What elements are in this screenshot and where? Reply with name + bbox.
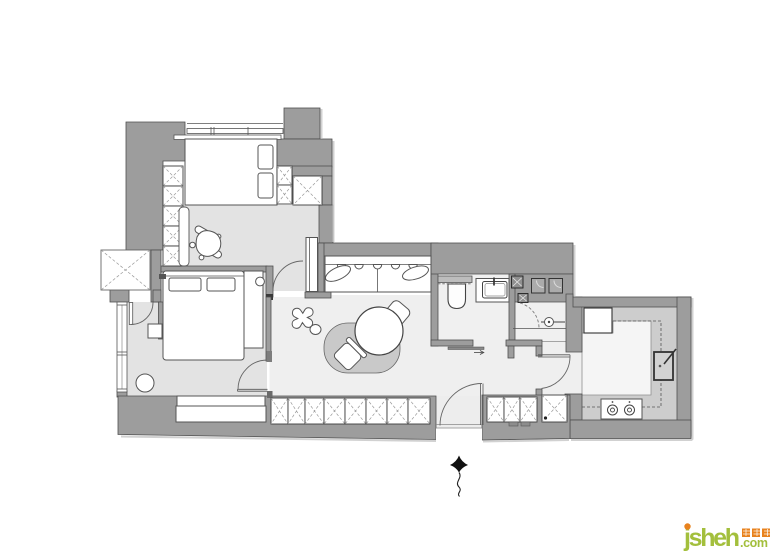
svg-text:.com: .com [740,536,768,550]
svg-text:jsheh: jsheh [683,524,739,551]
